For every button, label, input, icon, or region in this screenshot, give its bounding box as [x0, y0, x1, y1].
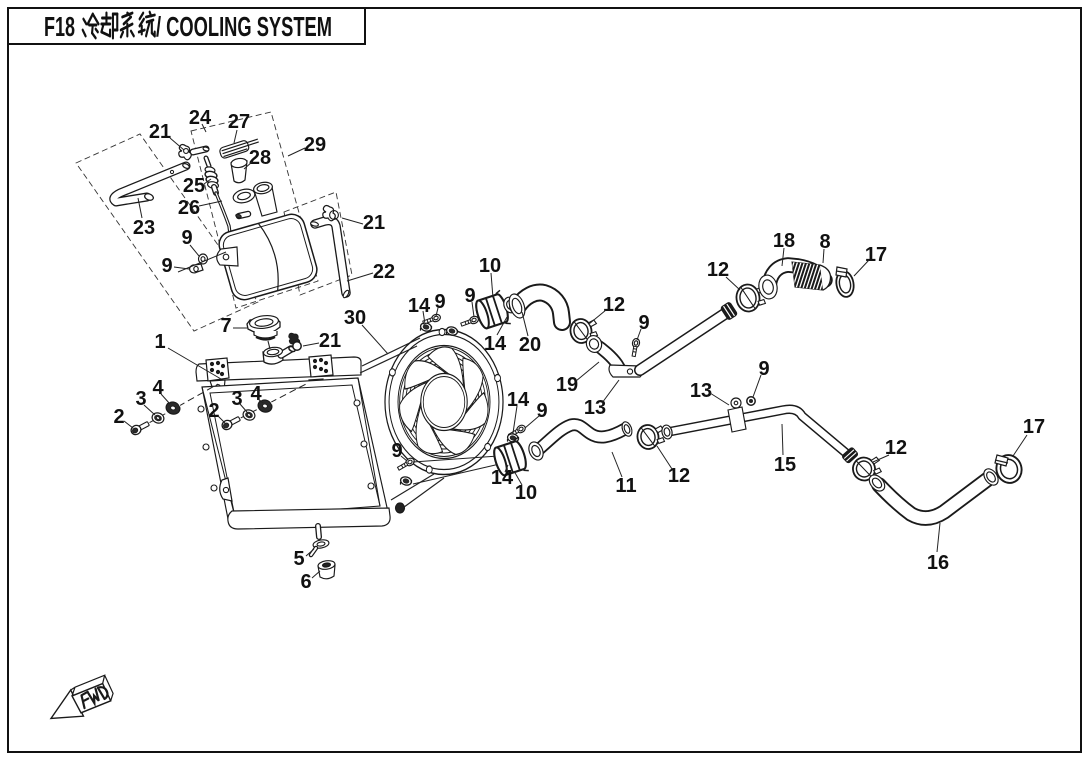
svg-text:9: 9 [464, 285, 475, 307]
svg-text:8: 8 [819, 231, 830, 253]
svg-text:21: 21 [319, 330, 341, 352]
svg-text:26: 26 [178, 197, 200, 219]
svg-text:9: 9 [536, 400, 547, 422]
svg-text:15: 15 [774, 454, 796, 476]
svg-text:14: 14 [507, 389, 530, 411]
svg-text:11: 11 [615, 475, 636, 497]
svg-text:16: 16 [927, 552, 949, 574]
svg-text:3: 3 [231, 388, 242, 410]
svg-text:7: 7 [220, 315, 231, 337]
svg-text:9: 9 [434, 291, 445, 313]
svg-text:21: 21 [363, 212, 385, 234]
svg-text:17: 17 [865, 244, 887, 266]
svg-text:9: 9 [391, 440, 402, 462]
svg-text:24: 24 [189, 107, 212, 129]
svg-text:2: 2 [208, 400, 219, 422]
svg-text:/ COOLING SYSTEM: / COOLING SYSTEM [156, 11, 332, 42]
svg-text:14: 14 [484, 333, 507, 355]
svg-text:5: 5 [293, 548, 304, 570]
svg-text:23: 23 [133, 217, 155, 239]
svg-text:22: 22 [373, 261, 395, 283]
svg-text:28: 28 [249, 147, 271, 169]
svg-text:9: 9 [161, 255, 172, 277]
svg-text:12: 12 [603, 294, 625, 316]
svg-text:6: 6 [300, 571, 311, 593]
svg-text:2: 2 [113, 406, 124, 428]
svg-text:F18: F18 [44, 11, 75, 42]
svg-text:1: 1 [154, 331, 165, 353]
svg-text:13: 13 [584, 397, 606, 419]
svg-text:10: 10 [515, 482, 537, 504]
svg-text:20: 20 [519, 334, 541, 356]
svg-text:3: 3 [135, 388, 146, 410]
svg-text:25: 25 [183, 175, 205, 197]
svg-text:27: 27 [228, 111, 250, 133]
svg-text:14: 14 [408, 295, 431, 317]
svg-text:29: 29 [304, 134, 326, 156]
svg-text:10: 10 [479, 255, 501, 277]
svg-text:21: 21 [149, 121, 171, 143]
svg-text:19: 19 [556, 374, 578, 396]
svg-text:14: 14 [491, 467, 514, 489]
svg-text:12: 12 [707, 259, 729, 281]
svg-text:17: 17 [1023, 416, 1045, 438]
svg-text:13: 13 [690, 380, 712, 402]
